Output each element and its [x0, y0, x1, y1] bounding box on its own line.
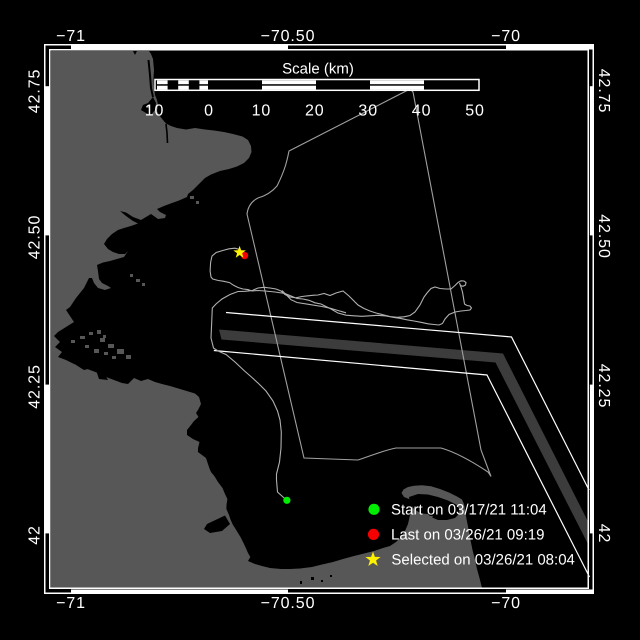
svg-text:Scale (km): Scale (km) — [282, 61, 354, 78]
svg-text:−71: −71 — [56, 595, 86, 612]
svg-text:−70.50: −70.50 — [261, 28, 316, 45]
svg-text:42: 42 — [27, 525, 44, 545]
svg-text:Selected on 03/26/21 08:04: Selected on 03/26/21 08:04 — [391, 552, 575, 569]
svg-text:−70: −70 — [491, 595, 521, 612]
svg-text:42.25: 42.25 — [27, 364, 44, 409]
svg-text:42.50: 42.50 — [595, 214, 612, 259]
svg-text:42.50: 42.50 — [27, 215, 44, 260]
svg-text:Last on 03/26/21 09:19: Last on 03/26/21 09:19 — [391, 527, 544, 544]
svg-text:−70.50: −70.50 — [261, 595, 316, 612]
svg-text:42.25: 42.25 — [595, 364, 612, 409]
svg-text:10: 10 — [145, 103, 165, 120]
svg-text:−70: −70 — [491, 28, 521, 45]
svg-text:42.75: 42.75 — [27, 69, 44, 114]
svg-text:50: 50 — [465, 103, 485, 120]
svg-text:42: 42 — [595, 524, 612, 544]
svg-text:−71: −71 — [56, 28, 86, 45]
svg-text:42.75: 42.75 — [595, 69, 612, 114]
svg-text:30: 30 — [358, 103, 378, 120]
svg-text:10: 10 — [252, 103, 272, 120]
svg-text:20: 20 — [305, 103, 325, 120]
svg-text:40: 40 — [412, 103, 432, 120]
svg-text:0: 0 — [204, 103, 214, 120]
svg-text:Start on 03/17/21 11:04: Start on 03/17/21 11:04 — [391, 502, 547, 519]
